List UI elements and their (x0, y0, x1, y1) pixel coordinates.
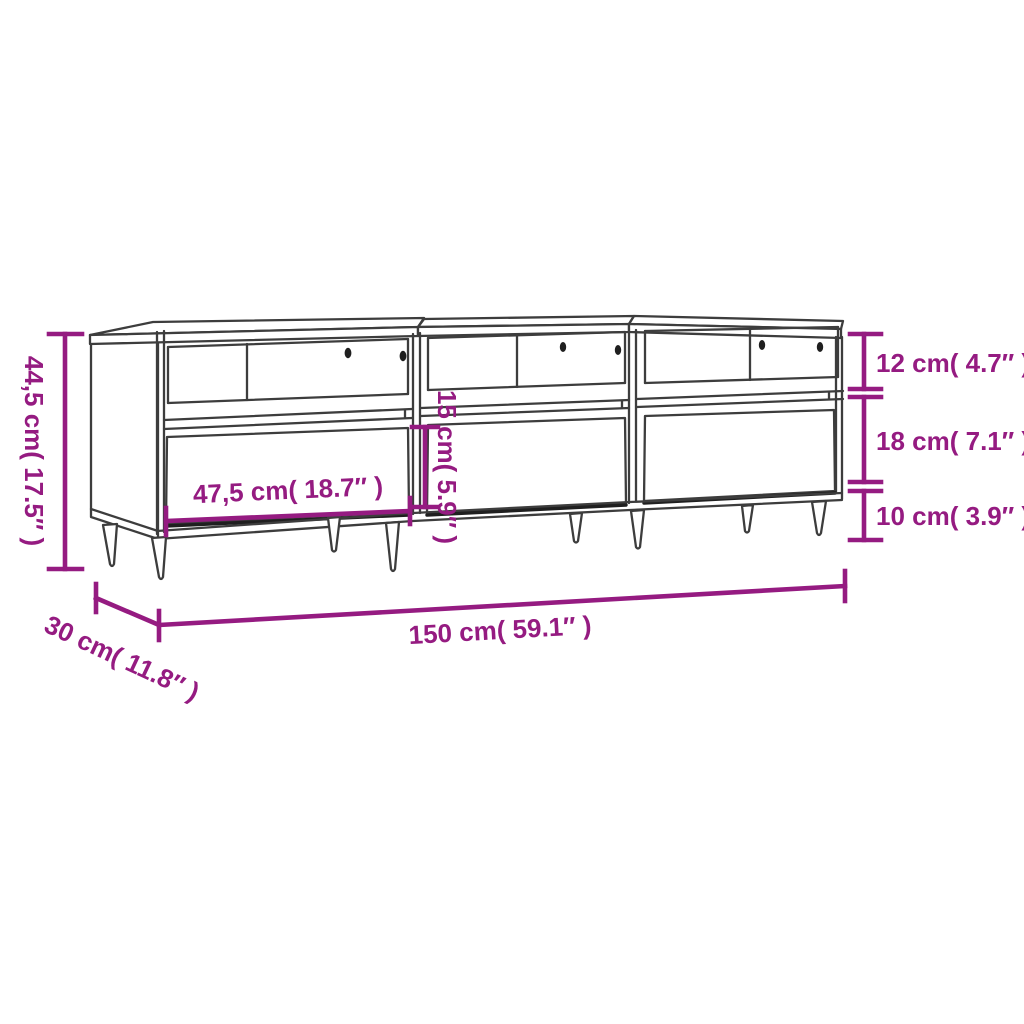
cabinet-leg (812, 501, 826, 535)
open-shelf-compartment (428, 332, 625, 390)
cable-hole (560, 342, 566, 352)
cabinet-leg (103, 524, 117, 566)
middle-section-height-label: 18 cm( 7.1″ ) (876, 426, 1024, 456)
drawer-front (644, 410, 835, 501)
cable-hole (759, 340, 765, 350)
drawer-inner-height-label: 15 cm( 5.9″ ) (432, 390, 462, 544)
cabinet-leg (570, 513, 582, 543)
cabinet-leg (328, 517, 340, 552)
tv-cabinet-diagram: 44,5 cm( 17.5″ ) 12 cm( 4.7″ ) 18 cm( 7.… (0, 0, 1024, 1024)
overall-height-dimension-line (49, 334, 82, 569)
overall-width-label: 150 cm( 59.1″ ) (408, 610, 592, 650)
product-dimension-diagram: 44,5 cm( 17.5″ ) 12 cm( 4.7″ ) 18 cm( 7.… (0, 0, 1024, 1024)
overall-height-label: 44,5 cm( 17.5″ ) (19, 356, 49, 546)
cabinet-drawing (90, 316, 843, 579)
cabinet-leg (386, 522, 399, 571)
cabinet-module-divider (413, 333, 420, 514)
cable-hole (615, 345, 621, 355)
shelf-board (637, 391, 843, 407)
cabinet-module-divider (629, 330, 636, 503)
dimension-annotations: 44,5 cm( 17.5″ ) 12 cm( 4.7″ ) 18 cm( 7.… (19, 334, 1024, 707)
overall-depth-dimension-line (96, 584, 159, 625)
cable-hole (345, 348, 352, 358)
open-shelf-height-label: 12 cm( 4.7″ ) (876, 348, 1024, 378)
cabinet-leg (742, 505, 753, 533)
open-shelf-compartment (168, 339, 408, 403)
cabinet-leg (631, 510, 644, 549)
cable-hole (817, 342, 823, 352)
shelf-board (164, 409, 412, 429)
cabinet-front-left-post (157, 331, 164, 534)
cable-hole (400, 351, 407, 361)
cabinet-leg (152, 537, 166, 579)
leg-height-label: 10 cm( 3.9″ ) (876, 501, 1024, 531)
cabinet-left-side-panel (91, 330, 158, 539)
